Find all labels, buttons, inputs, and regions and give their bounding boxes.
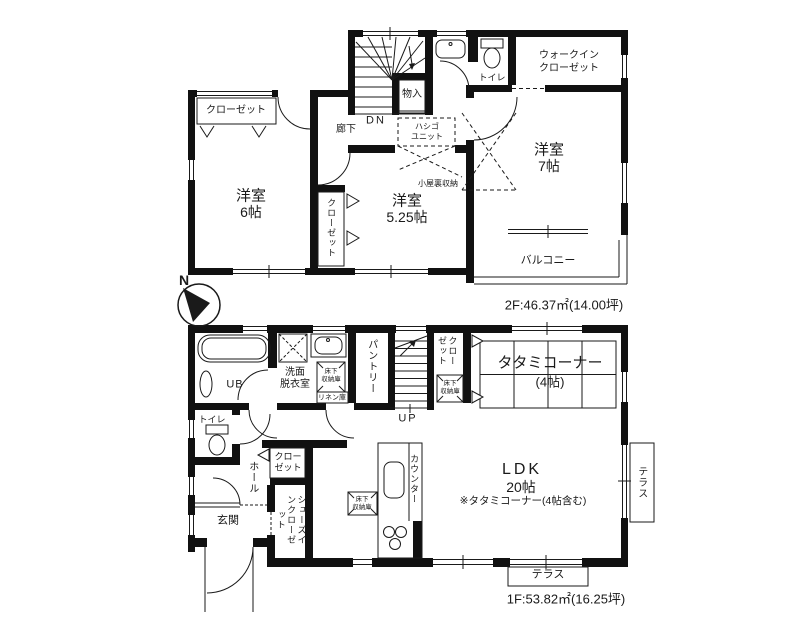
- f2-bedroom6-size: 6帖: [240, 205, 262, 219]
- f1-area-label: 1F:53.82㎡(16.25坪): [507, 593, 626, 606]
- floorplan-linework: [0, 0, 800, 635]
- f1-entrance-label: 玄関: [217, 516, 239, 527]
- f1-ldk-size: 20帖: [506, 480, 536, 494]
- f2-bedroom7-name: 洋室: [534, 143, 564, 158]
- f2-hallway-label: 廊下: [336, 125, 356, 135]
- f1-ldk-note: ※タタミコーナー(4帖含む): [460, 496, 587, 507]
- f2-storage-label: 物入: [402, 90, 422, 100]
- f1-linen-label: リネン庫: [318, 395, 346, 402]
- f2-attic-storage-label: 小屋裏収納: [418, 180, 458, 188]
- f2-wic-line1: ウォークイン: [539, 51, 599, 61]
- f2-stairs-dn-label: DN: [366, 116, 386, 127]
- f2-bedroom525-name: 洋室: [392, 194, 422, 209]
- f1-underfloor-stairs-line1: 床下: [444, 381, 457, 388]
- floor1-stairs: [390, 336, 427, 413]
- f1-underfloor-kitchen-line2: 収納庫: [352, 505, 372, 512]
- f2-area-label: 2F:46.37㎡(14.00坪): [505, 299, 624, 312]
- f1-underfloor-kitchen-line1: 床下: [356, 497, 369, 504]
- f2-bedroom6-name: 洋室: [236, 189, 266, 204]
- f2-bedroom7-size: 7帖: [538, 159, 560, 173]
- f1-hall-label: ホール: [246, 454, 258, 500]
- compass-north-label: N: [179, 273, 189, 287]
- f2-toilet-label: トイレ: [478, 74, 505, 83]
- f2-balcony-label: バルコニー: [521, 256, 576, 267]
- f1-washroom-line2: 脱衣室: [280, 380, 310, 390]
- f1-closet-stairs-label: クローゼット: [437, 335, 458, 367]
- f2-bedroom525-size: 5.25帖: [386, 210, 427, 224]
- f2-ladder-unit-line1: ハシゴ: [415, 123, 439, 131]
- f2-closet-525-label: クローゼット: [326, 197, 336, 259]
- f1-shoes-in-closet-label: シューズインクローゼット: [275, 491, 306, 549]
- f1-washroom-line1: 洗面: [285, 368, 305, 378]
- f1-bath-label: UB: [226, 380, 243, 391]
- f1-tatami-size: (4帖): [536, 376, 565, 389]
- f1-underfloor-wash-line1: 床下: [325, 369, 338, 376]
- compass-icon: [178, 284, 220, 326]
- f1-tatami-name: タタミコーナー: [497, 356, 602, 371]
- f2-closet-west-label: クローゼット: [206, 106, 266, 116]
- f2-ladder-unit-line2: ユニット: [411, 133, 443, 141]
- f1-toilet-label: トイレ: [198, 416, 225, 425]
- f1-underfloor-wash-line2: 収納庫: [321, 377, 341, 384]
- f1-terrace-side-label: テラス: [635, 461, 647, 503]
- f1-pantry-label: パントリー: [365, 335, 377, 397]
- f1-ldk-name: LDK: [502, 462, 542, 478]
- f1-stairs-up-label: UP: [398, 414, 417, 425]
- f1-underfloor-stairs-line2: 収納庫: [440, 389, 460, 396]
- f2-wic-line2: クローゼット: [539, 64, 599, 74]
- f1-terrace-south-label: テラス: [532, 570, 565, 581]
- f1-counter-label: カウンター: [409, 452, 419, 506]
- floor-plan: N クローゼット 洋室 6帖 廊下 DN 物入 ハシゴ ユニット 小屋裏収納 洋…: [0, 0, 800, 635]
- f1-closet-hall-line1: クロー: [274, 453, 301, 462]
- f1-closet-hall-line2: ゼット: [274, 464, 301, 473]
